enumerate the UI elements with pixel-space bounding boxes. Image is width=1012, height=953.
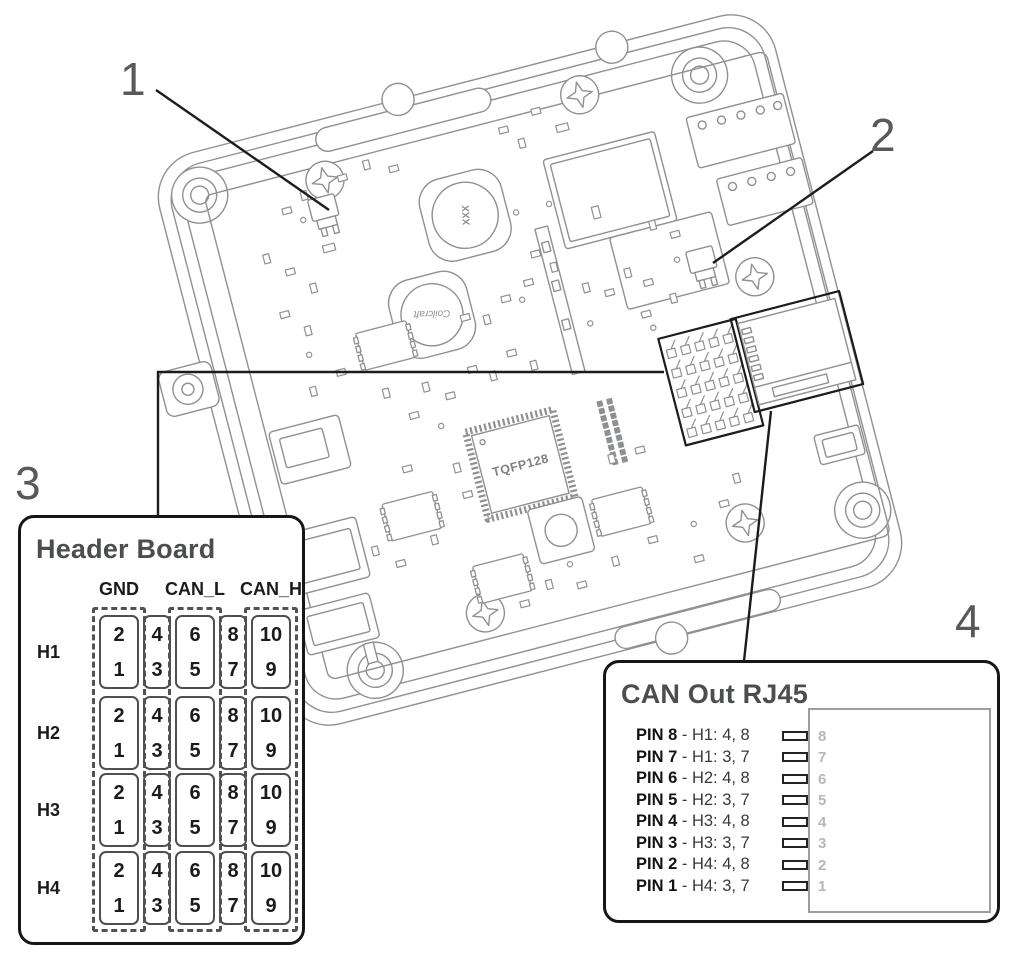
pin-number-top: 8 — [227, 706, 238, 726]
jumper-1 — [307, 194, 343, 239]
pin-mapping: - H3: 4, 8 — [682, 812, 750, 830]
pin-cell: 21 — [99, 851, 139, 925]
column-header-can_l: CAN_L — [165, 579, 225, 600]
callout-number-4: 4 — [955, 598, 981, 644]
inductor: XXX — [414, 164, 516, 266]
pin-map-row: PIN 7 - H1: 3, 7 — [636, 747, 750, 769]
pin-map-row: PIN 2 - H4: 4, 8 — [636, 854, 750, 876]
screw-boss — [341, 636, 409, 704]
pin-name: PIN 4 — [636, 812, 677, 830]
pin-number-bottom: 9 — [265, 818, 276, 838]
pin-cell: 65 — [175, 773, 215, 847]
pin-number-bottom: 1 — [113, 896, 124, 916]
pin-cell: 109 — [251, 615, 291, 689]
pin-number-top: 4 — [151, 861, 162, 881]
connector-pin-number: 4 — [818, 812, 826, 834]
pin-number-bottom: 9 — [265, 660, 276, 680]
pin-cell: 21 — [99, 696, 139, 770]
connector-pin-number: 5 — [818, 790, 826, 812]
pin-mapping: - H3: 3, 7 — [682, 834, 750, 852]
pin-name: PIN 5 — [636, 791, 677, 809]
connector-pin-stub — [782, 795, 808, 805]
pin-number-top: 10 — [260, 783, 282, 803]
pin-number-bottom: 9 — [265, 741, 276, 761]
connector-pin-stub — [782, 881, 808, 891]
connector-pin-number: 7 — [818, 747, 826, 769]
pin-number-bottom: 7 — [227, 660, 238, 680]
connector-pin-number: 1 — [818, 876, 826, 898]
pin-number-bottom: 9 — [265, 896, 276, 916]
pin-number-top: 4 — [151, 625, 162, 645]
pin-number-bottom: 1 — [113, 818, 124, 838]
mini-usb — [814, 425, 866, 466]
pin-name: PIN 2 — [636, 855, 677, 873]
row-label-h4: H4 — [37, 851, 79, 925]
pin-cell: 109 — [251, 851, 291, 925]
column-header-can_h: CAN_H — [240, 579, 302, 600]
pin-name: PIN 8 — [636, 726, 677, 744]
callout-number-3: 3 — [15, 460, 41, 506]
connector-pin-stub — [782, 860, 808, 870]
connector-pin-stub — [782, 838, 808, 848]
pin-cell: 87 — [219, 773, 247, 847]
rj45-connector-outline — [808, 708, 991, 913]
pin-number-bottom: 5 — [189, 896, 200, 916]
pin-cell: 87 — [219, 615, 247, 689]
microsd-slot — [268, 414, 351, 484]
pin-number-top: 6 — [189, 625, 200, 645]
pin-number-bottom: 5 — [189, 741, 200, 761]
pin-number-top: 10 — [260, 706, 282, 726]
ic-chip — [470, 553, 536, 604]
pin-number-top: 10 — [260, 625, 282, 645]
pin-cell: 21 — [99, 773, 139, 847]
pin-number-top: 2 — [113, 706, 124, 726]
push-button — [527, 496, 595, 564]
pin-mapping: - H2: 4, 8 — [682, 769, 750, 787]
pin-cell: 65 — [175, 851, 215, 925]
can-out-title: CAN Out RJ45 — [621, 679, 808, 710]
pin-number-top: 2 — [113, 861, 124, 881]
pin-map-row: PIN 3 - H3: 3, 7 — [636, 833, 750, 855]
pin-number-bottom: 3 — [151, 818, 162, 838]
pin-map-row: PIN 5 - H2: 3, 7 — [636, 790, 750, 812]
ic-chip — [379, 491, 445, 542]
pin-cell: 87 — [219, 851, 247, 925]
pin-number-bottom: 7 — [227, 818, 238, 838]
connector-pin-number: 3 — [818, 833, 826, 855]
pin-name: PIN 7 — [636, 748, 677, 766]
ic-chip — [352, 320, 418, 371]
pin-number-bottom: 3 — [151, 741, 162, 761]
device-pinout-diagram: XXX Coilcraft TQFP128 — [0, 0, 1012, 953]
pin-number-top: 8 — [227, 861, 238, 881]
pin-number-top: 2 — [113, 625, 124, 645]
pin-number-top: 8 — [227, 783, 238, 803]
header-board-box: Header Board GNDCAN_LCAN_HH121436587109H… — [18, 515, 305, 945]
row-label-h1: H1 — [37, 615, 79, 689]
pin-name: PIN 6 — [636, 769, 677, 787]
pin-number-bottom: 7 — [227, 741, 238, 761]
screw-boss — [166, 161, 234, 229]
pin-map-row: PIN 1 - H4: 3, 7 — [636, 876, 750, 898]
pin-cell: 109 — [251, 773, 291, 847]
can-out-rj45-box: CAN Out RJ45 PIN 8 - H1: 4, 88PIN 7 - H1… — [603, 660, 1000, 923]
pin-mapping: - H2: 3, 7 — [682, 791, 750, 809]
pin-number-bottom: 3 — [151, 660, 162, 680]
connector-pin-number: 8 — [818, 726, 826, 748]
pin-map-row: PIN 4 - H3: 4, 8 — [636, 811, 750, 833]
pin-map-row: PIN 8 - H1: 4, 8 — [636, 725, 750, 747]
pin-mapping: - H4: 4, 8 — [682, 855, 750, 873]
pin-cell: 87 — [219, 696, 247, 770]
inductor-brand-label: Coilcraft — [412, 307, 450, 319]
pin-number-bottom: 5 — [189, 660, 200, 680]
phillips-screw — [557, 72, 603, 118]
phillips-screw — [732, 254, 778, 300]
pin-number-top: 6 — [189, 861, 200, 881]
connector-pin-stub — [782, 731, 808, 741]
pin-cell: 43 — [143, 773, 171, 847]
pin-number-top: 8 — [227, 625, 238, 645]
pin-cell: 65 — [175, 615, 215, 689]
pin-number-top: 4 — [151, 783, 162, 803]
pin-number-bottom: 5 — [189, 818, 200, 838]
pin-number-top: 10 — [260, 861, 282, 881]
pin-number-bottom: 1 — [113, 660, 124, 680]
inductor-top-label: XXX — [461, 205, 473, 226]
pin-cell: 65 — [175, 696, 215, 770]
pin-number-top: 4 — [151, 706, 162, 726]
connector-pin-number: 2 — [818, 855, 826, 877]
pin-number-bottom: 3 — [151, 896, 162, 916]
pin-number-top: 6 — [189, 706, 200, 726]
connector-pin-stub — [782, 774, 808, 784]
pin-mapping: - H1: 4, 8 — [682, 726, 750, 744]
pin-mapping: - H4: 3, 7 — [682, 877, 750, 895]
connector-pin-number: 6 — [818, 769, 826, 791]
pin-name: PIN 3 — [636, 834, 677, 852]
row-label-h2: H2 — [37, 696, 79, 770]
pin-cell: 43 — [143, 615, 171, 689]
pin-number-bottom: 7 — [227, 896, 238, 916]
callout-number-1: 1 — [120, 56, 146, 102]
pin-cell: 43 — [143, 696, 171, 770]
pin-name: PIN 1 — [636, 877, 677, 895]
pin-cell: 21 — [99, 615, 139, 689]
pin-mapping: - H1: 3, 7 — [682, 748, 750, 766]
pin-cell: 43 — [143, 851, 171, 925]
callout-number-2: 2 — [870, 112, 896, 158]
pin-cell: 109 — [251, 696, 291, 770]
header-board-title: Header Board — [36, 534, 215, 565]
pin-number-top: 2 — [113, 783, 124, 803]
pin-number-bottom: 1 — [113, 741, 124, 761]
row-label-h3: H3 — [37, 773, 79, 847]
pin-map-row: PIN 6 - H2: 4, 8 — [636, 768, 750, 790]
ic-chip — [589, 486, 655, 537]
connector-pin-stub — [782, 752, 808, 762]
screw-boss — [665, 41, 733, 109]
pin-number-top: 6 — [189, 783, 200, 803]
connector-pin-stub — [782, 817, 808, 827]
column-header-gnd: GND — [99, 579, 139, 600]
